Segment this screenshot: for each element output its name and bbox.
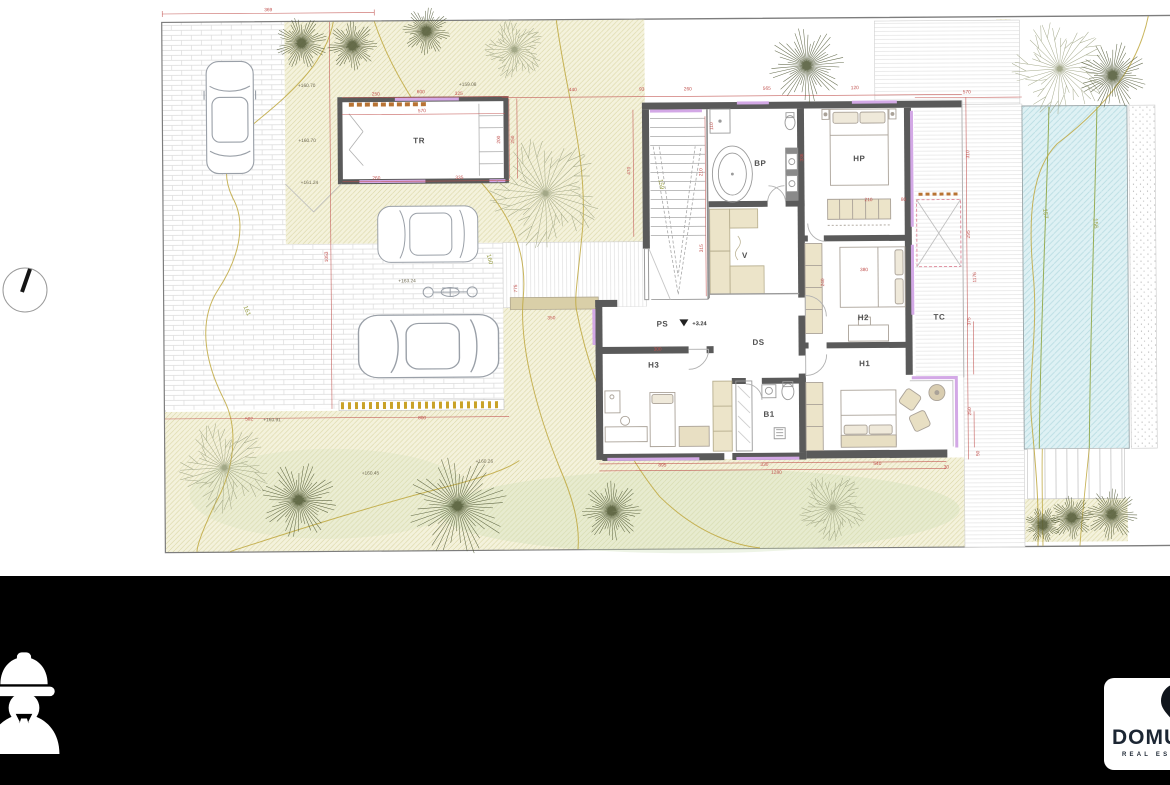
elevation-label: +160.70 bbox=[298, 138, 316, 144]
brand-card: DOMUS REAL ESTATE bbox=[1104, 678, 1170, 770]
dimension-label: 260 bbox=[684, 86, 692, 92]
dimension-label: 775 bbox=[513, 284, 519, 292]
elevation-label: +160.26 bbox=[476, 459, 494, 465]
dimension-label: 210 bbox=[698, 168, 704, 176]
contour-label: 156 bbox=[1091, 218, 1099, 229]
contour-label: 157 bbox=[1041, 208, 1049, 219]
dimension-label: 800 bbox=[418, 415, 426, 421]
room-label: H1 bbox=[859, 359, 870, 368]
dimension-label: 1280 bbox=[771, 470, 782, 476]
dimension-label: 570 bbox=[963, 89, 971, 95]
dimension-label: 295 bbox=[966, 230, 972, 238]
dimension-label: 336 bbox=[799, 153, 805, 161]
construction-worker-icon bbox=[0, 650, 62, 754]
dimension-label: 1176 bbox=[972, 272, 978, 283]
room-label: TC bbox=[934, 313, 946, 322]
bedroom-hp-furniture bbox=[822, 109, 897, 226]
room-label: PS bbox=[657, 319, 669, 328]
dimension-label: 93 bbox=[639, 87, 645, 93]
dimension-label: 315 bbox=[699, 244, 705, 252]
elevation-label: +160.70 bbox=[298, 83, 316, 89]
elevation-label: +160.45 bbox=[362, 471, 380, 477]
dimension-label: 375 bbox=[966, 317, 972, 325]
dimension-label: 310 bbox=[965, 150, 971, 158]
dimension-label: 369 bbox=[264, 7, 272, 13]
room-label: BP bbox=[754, 159, 766, 168]
dimension-label: 30 bbox=[944, 465, 950, 471]
dimension-label: 380 bbox=[860, 267, 868, 273]
dimension-label: 250 bbox=[510, 135, 516, 143]
car-icon bbox=[204, 61, 256, 173]
brand-name: DOMUS bbox=[1112, 726, 1170, 750]
screenshot-root: 3692506003255702603352002501053502800440… bbox=[0, 0, 1170, 785]
north-indicator bbox=[0, 258, 60, 322]
site-plan: 3692506003255702603352002501053502800440… bbox=[0, 0, 1170, 576]
car-icon bbox=[358, 314, 498, 377]
dimension-label: 565 bbox=[763, 86, 771, 92]
dimension-label: 200 bbox=[496, 135, 502, 143]
dimension-label: 330 bbox=[760, 462, 768, 468]
elevation-label: +161.24 bbox=[301, 180, 319, 186]
swimming-pool bbox=[1022, 105, 1129, 449]
dimension-label: 300 bbox=[654, 347, 662, 353]
dimension-label: 250 bbox=[372, 91, 380, 97]
footer-band: DOMUS REAL ESTATE bbox=[0, 576, 1170, 785]
elevation-label: +159.08 bbox=[459, 82, 477, 88]
dimension-label: 540 bbox=[873, 461, 881, 467]
room-label: DS bbox=[752, 338, 764, 347]
room-label: H2 bbox=[858, 313, 869, 322]
dimension-label: 250 bbox=[967, 407, 973, 415]
room-label: H3 bbox=[648, 361, 659, 370]
dimension-label: 895 bbox=[658, 462, 666, 468]
car-icon bbox=[378, 206, 478, 263]
dimension-label: 110 bbox=[709, 122, 715, 130]
dimension-label: 570 bbox=[418, 108, 426, 114]
dimension-label: 470 bbox=[626, 166, 632, 174]
dimension-label: 440 bbox=[569, 87, 577, 93]
room-label: B1 bbox=[763, 410, 774, 419]
dimension-label: 1053 bbox=[324, 251, 330, 262]
dimension-label: 80 bbox=[901, 197, 907, 203]
elevation-label: +160.91 bbox=[263, 417, 281, 423]
dimension-label: 50 bbox=[975, 450, 981, 456]
stepping-strip bbox=[339, 400, 504, 411]
level-label: +3.24 bbox=[692, 321, 707, 327]
dimension-label: 502 bbox=[245, 416, 253, 422]
dimension-label: 600 bbox=[417, 89, 425, 95]
room-label: TR bbox=[413, 136, 425, 145]
dimension-label: 335 bbox=[455, 175, 463, 181]
brand-tagline: REAL ESTATE bbox=[1122, 752, 1170, 758]
dimension-label: 120 bbox=[851, 85, 859, 91]
dimension-label: 260 bbox=[372, 175, 380, 181]
dimension-label: 350 bbox=[547, 315, 555, 321]
dimension-label: 240 bbox=[820, 278, 826, 286]
house bbox=[592, 100, 964, 461]
dimension-label: 325 bbox=[455, 91, 463, 97]
elevation-label: +163.24 bbox=[398, 278, 416, 284]
room-label: HP bbox=[853, 154, 865, 163]
dimension-label: 210 bbox=[865, 197, 873, 203]
room-label: V bbox=[742, 251, 748, 260]
gravel-strip bbox=[1129, 105, 1157, 448]
